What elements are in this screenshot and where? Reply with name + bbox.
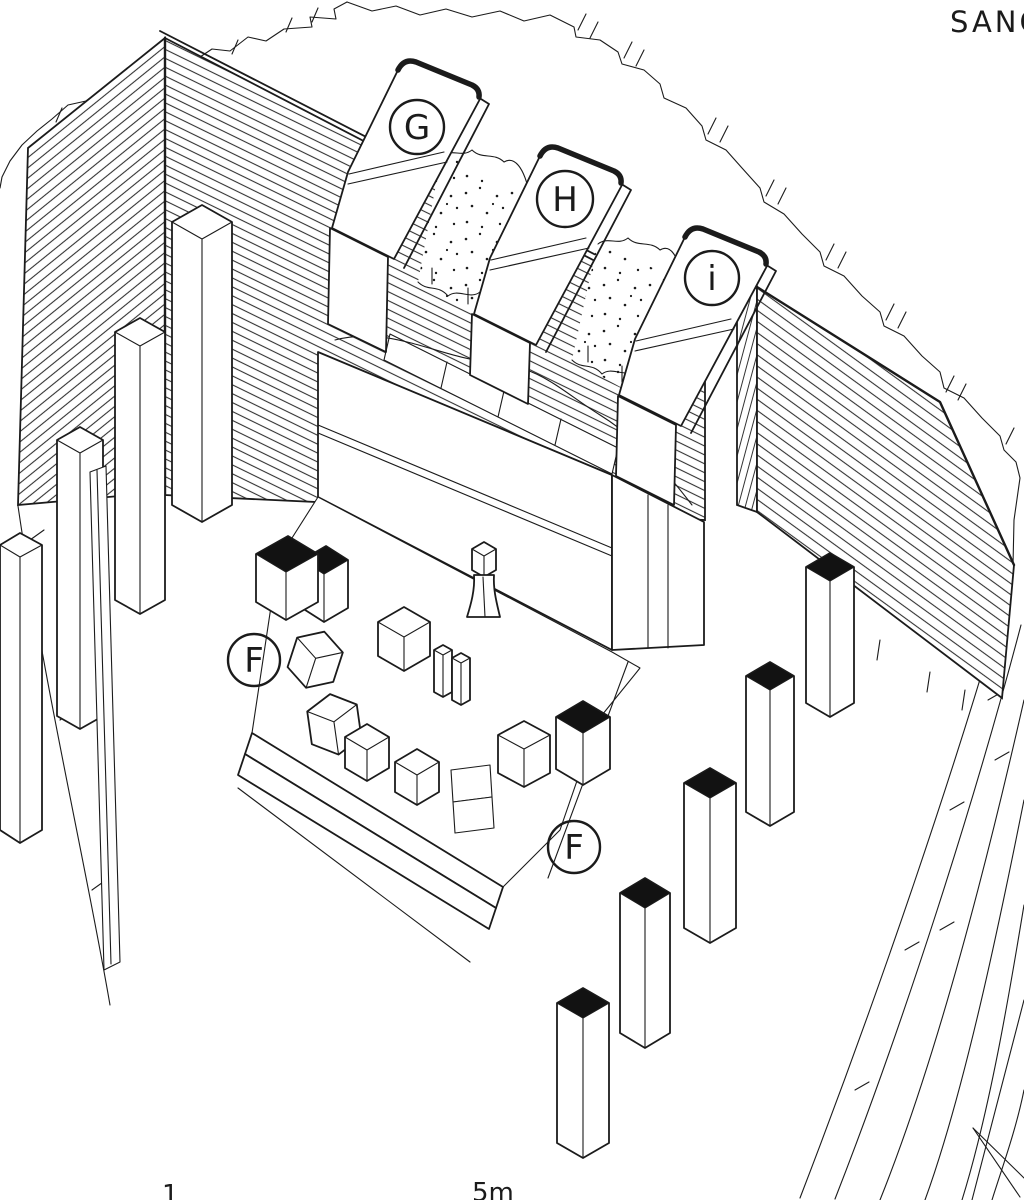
black-top-pillar-1 bbox=[806, 553, 854, 717]
white-pillar-4 bbox=[0, 533, 42, 843]
black-top-block-platform bbox=[556, 701, 610, 785]
black-top-pillar-5 bbox=[557, 988, 609, 1158]
slab-pair bbox=[434, 645, 470, 705]
black-top-pillar-4 bbox=[620, 878, 670, 1048]
floor-label-f1-letter: F bbox=[244, 641, 264, 681]
scale-label-end: 5m bbox=[472, 1178, 514, 1200]
cube-large bbox=[378, 607, 430, 671]
white-pillar-1 bbox=[172, 205, 232, 522]
black-top-pillar-3 bbox=[684, 768, 736, 943]
sanctuary-axonometric-page: G H i bbox=[0, 0, 1024, 1200]
sanctuary-axonometric-drawing: G H i bbox=[0, 0, 1024, 1200]
right-wall bbox=[737, 287, 1014, 710]
scale-label-start: 1 bbox=[162, 1180, 179, 1200]
page-title: SANC bbox=[950, 5, 1024, 39]
cube-d bbox=[395, 749, 439, 805]
arrow-mark bbox=[973, 1128, 1024, 1197]
stela-i-letter: i bbox=[707, 259, 716, 299]
floor-label-f2: F bbox=[548, 821, 600, 873]
cube-e bbox=[498, 721, 550, 787]
black-top-pillar-2 bbox=[746, 662, 794, 826]
right-wall-left-face bbox=[737, 287, 757, 512]
white-pillar-2 bbox=[115, 318, 165, 614]
stela-g-letter: G bbox=[404, 108, 430, 148]
stela-h-letter: H bbox=[552, 180, 578, 220]
right-wall-front-face bbox=[757, 287, 1014, 698]
flat-slabs bbox=[451, 765, 494, 833]
floor-label-f2-letter: F bbox=[564, 828, 584, 868]
cube-c bbox=[345, 724, 389, 781]
